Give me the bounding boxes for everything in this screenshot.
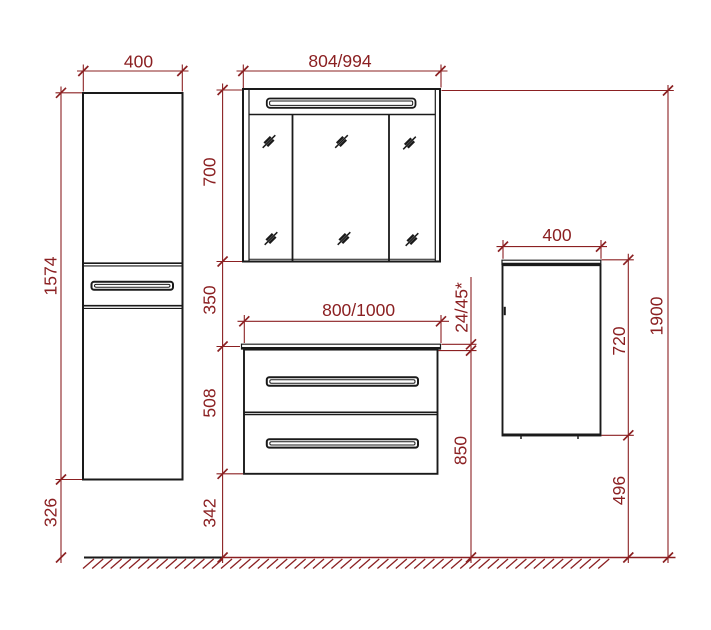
svg-text:326: 326 bbox=[40, 498, 60, 527]
svg-text:804/994: 804/994 bbox=[308, 51, 372, 71]
svg-text:700: 700 bbox=[200, 157, 220, 186]
svg-text:496: 496 bbox=[609, 476, 629, 505]
svg-text:400: 400 bbox=[124, 52, 153, 72]
svg-text:850: 850 bbox=[451, 436, 471, 465]
svg-text:508: 508 bbox=[200, 388, 220, 417]
svg-text:400: 400 bbox=[542, 225, 571, 245]
svg-text:1900: 1900 bbox=[647, 296, 667, 335]
svg-text:24/45*: 24/45* bbox=[451, 282, 471, 333]
svg-text:720: 720 bbox=[609, 326, 629, 355]
svg-text:1574: 1574 bbox=[40, 256, 60, 295]
svg-text:342: 342 bbox=[200, 498, 220, 527]
svg-text:800/1000: 800/1000 bbox=[322, 300, 395, 320]
svg-text:350: 350 bbox=[200, 285, 220, 314]
